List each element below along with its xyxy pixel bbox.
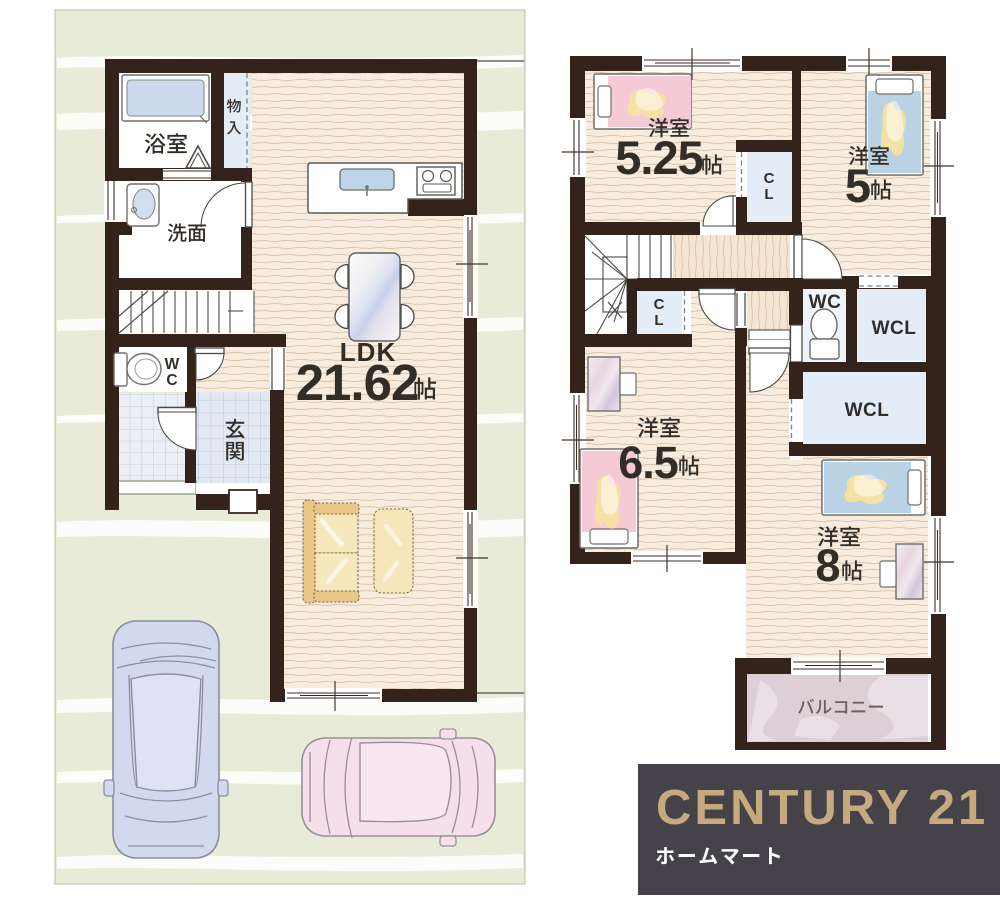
svg-text:L: L [764,186,773,203]
svg-text:5.25: 5.25 [615,131,702,184]
svg-text:CENTURY 21: CENTURY 21 [656,781,988,835]
svg-text:C: C [764,170,775,187]
svg-text:6.5: 6.5 [618,437,678,488]
svg-text:WCL: WCL [845,400,890,421]
svg-text:L: L [654,312,663,329]
svg-text:5: 5 [845,159,871,212]
svg-text:C: C [654,296,665,313]
svg-text:W: W [165,356,180,373]
svg-text:8: 8 [815,540,840,591]
svg-text:21.62: 21.62 [296,354,419,411]
svg-text:C: C [166,372,177,389]
svg-text:WCL: WCL [872,318,917,339]
